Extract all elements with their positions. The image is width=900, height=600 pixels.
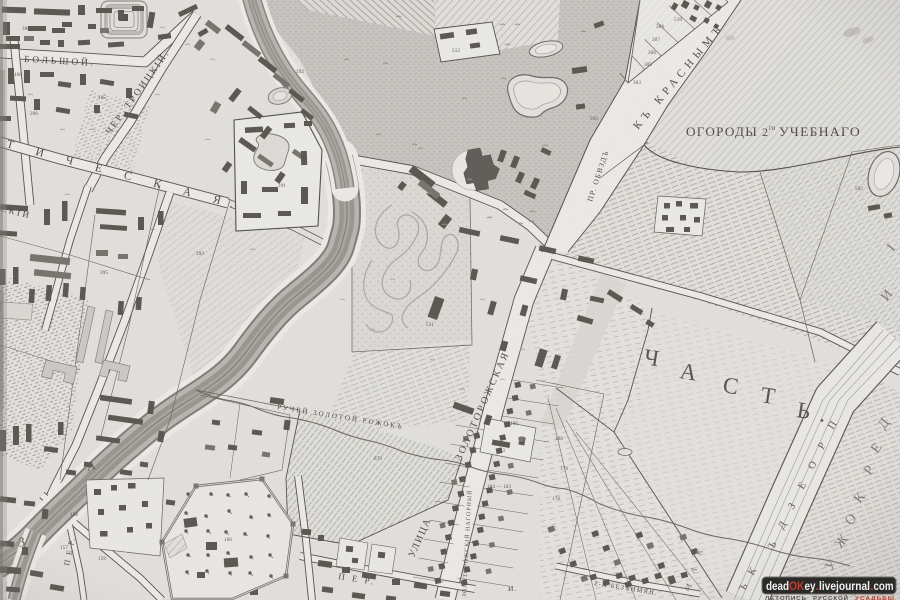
- svg-text:dead: dead: [766, 579, 789, 593]
- svg-text:OK: OK: [789, 579, 805, 593]
- svg-text:com: com: [874, 579, 894, 593]
- svg-text:ey: ey: [805, 579, 816, 593]
- svg-text:livejournal: livejournal: [819, 579, 870, 593]
- svg-text:ЛЕТОПИСЬ: ЛЕТОПИСЬ: [765, 596, 807, 600]
- svg-text:УСАДЬБЫ: УСАДЬБЫ: [855, 596, 895, 600]
